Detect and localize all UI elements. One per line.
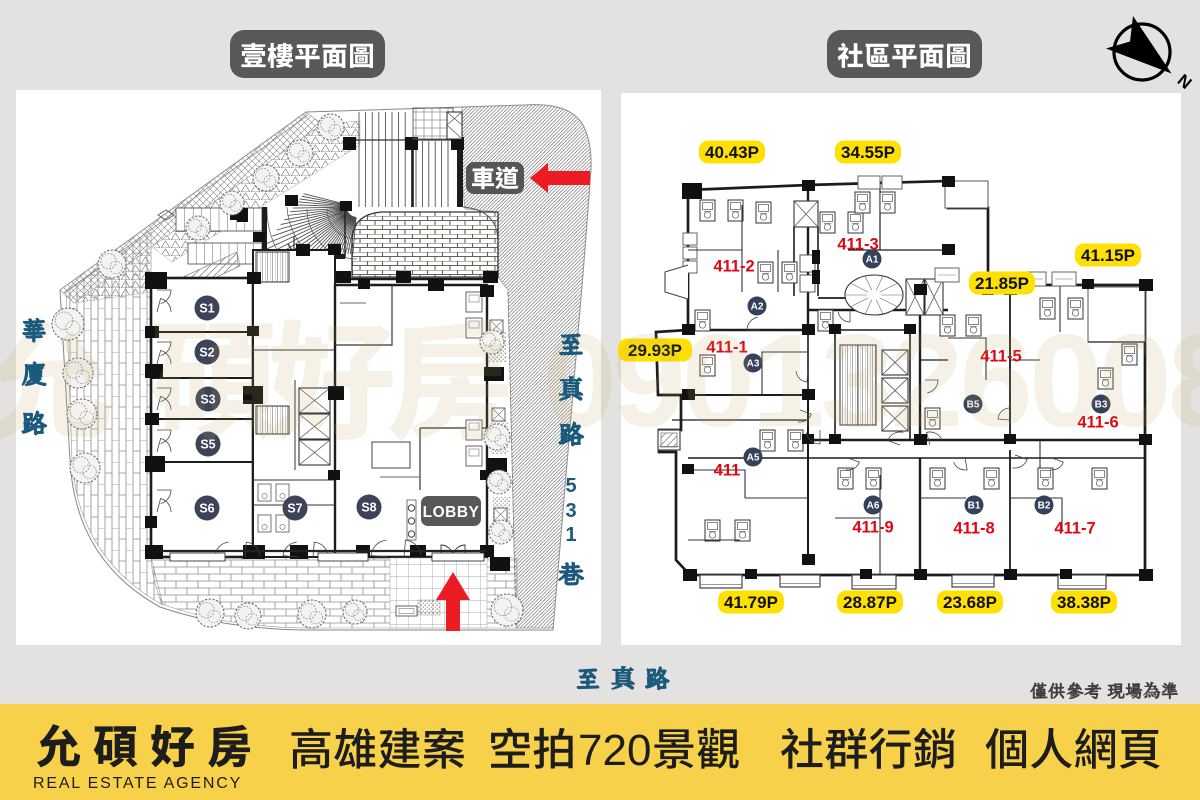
svg-text:411-2: 411-2 (713, 258, 754, 276)
svg-text:0901326008: 0901326008 (543, 307, 1200, 454)
svg-text:S7: S7 (287, 501, 302, 515)
svg-text:LOBBY: LOBBY (423, 504, 480, 521)
svg-text:23.68P: 23.68P (943, 593, 997, 612)
svg-text:34.55P: 34.55P (841, 143, 895, 162)
svg-text:S6: S6 (199, 501, 214, 515)
svg-text:40.43P: 40.43P (705, 143, 759, 162)
svg-text:720: 720 (578, 726, 651, 775)
svg-text:41.79P: 41.79P (724, 593, 778, 612)
svg-text:21.85P: 21.85P (975, 274, 1029, 293)
svg-text:A6: A6 (867, 501, 880, 512)
svg-text:B1: B1 (968, 501, 981, 512)
svg-text:411: 411 (714, 462, 741, 480)
svg-text:REAL ESTATE AGENCY: REAL ESTATE AGENCY (33, 775, 242, 792)
svg-text:38.38P: 38.38P (1057, 593, 1111, 612)
svg-text:5: 5 (565, 475, 576, 497)
svg-text:411-8: 411-8 (953, 520, 994, 538)
svg-text:A5: A5 (747, 453, 760, 464)
svg-text:S1: S1 (199, 301, 214, 315)
svg-text:3: 3 (565, 500, 576, 522)
svg-text:41.15P: 41.15P (1081, 246, 1135, 265)
svg-text:A1: A1 (866, 255, 879, 266)
svg-text:28.87P: 28.87P (843, 593, 897, 612)
svg-text:1: 1 (565, 524, 576, 546)
svg-text:B2: B2 (1038, 501, 1051, 512)
svg-text:411-9: 411-9 (852, 519, 893, 537)
svg-text:S8: S8 (361, 500, 376, 514)
svg-text:411-7: 411-7 (1054, 520, 1095, 538)
